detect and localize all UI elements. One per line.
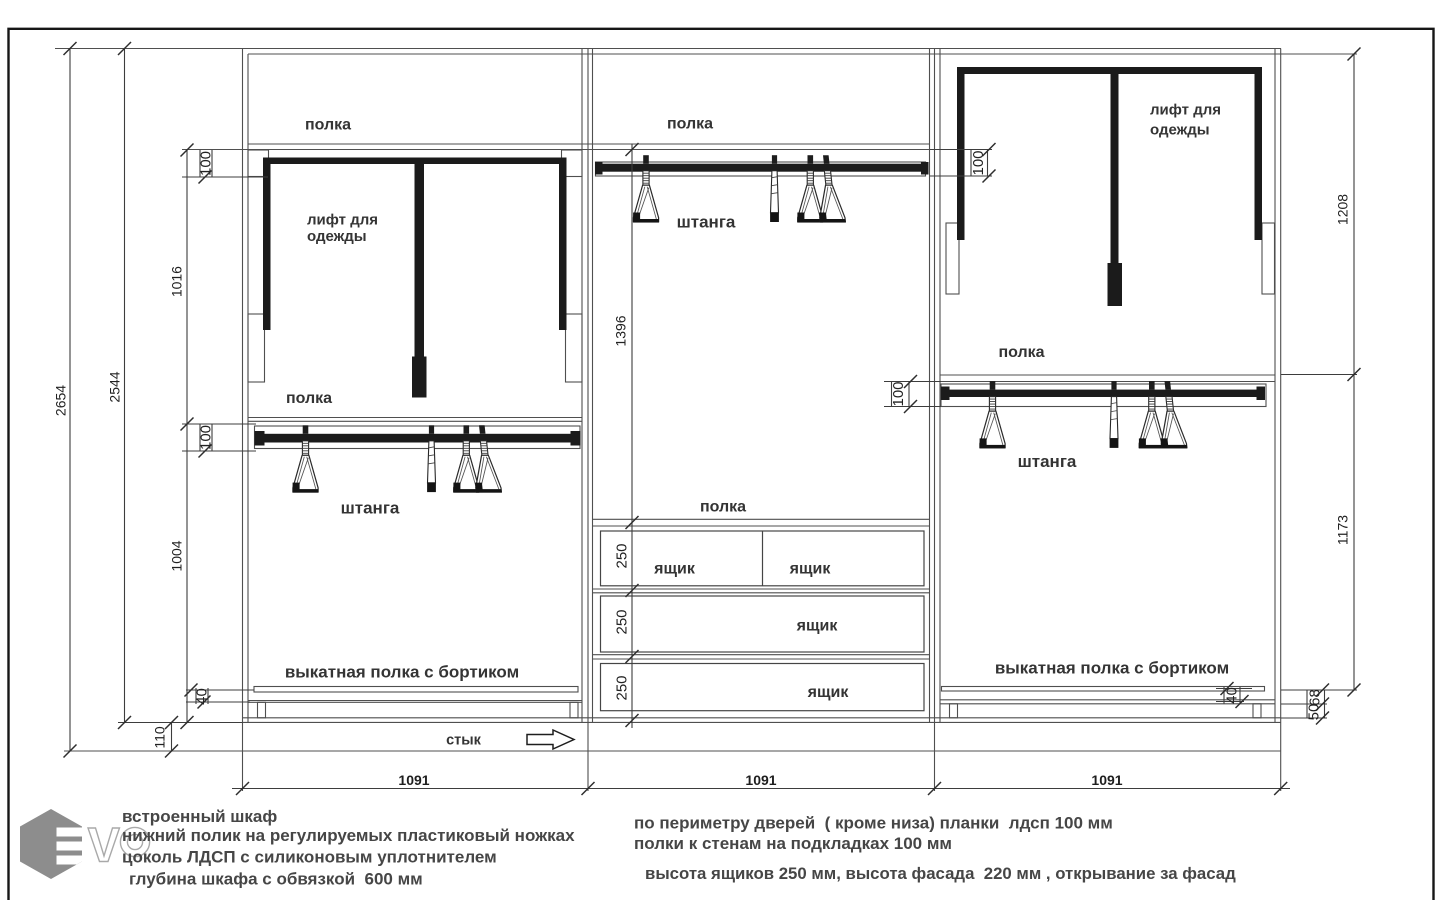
svg-text:1396: 1396 — [613, 315, 629, 346]
svg-text:100: 100 — [890, 381, 907, 406]
svg-text:1004: 1004 — [169, 540, 185, 571]
svg-text:полка: полка — [667, 116, 713, 133]
svg-text:по периметру дверей ( кроме н: по периметру дверей ( кроме низа) планки… — [634, 814, 1113, 833]
svg-text:ящик: ящик — [796, 618, 839, 635]
svg-text:250: 250 — [614, 609, 631, 634]
svg-text:нижний полик на регулируемых п: нижний полик на регулируемых пластиковый… — [122, 826, 575, 845]
svg-text:2654: 2654 — [53, 385, 69, 416]
svg-text:штанга: штанга — [677, 213, 736, 232]
svg-text:лифт для: лифт для — [1150, 102, 1221, 119]
svg-text:1091: 1091 — [745, 772, 776, 788]
svg-text:глубина шкафа с обвязкой 600: глубина шкафа с обвязкой 600 мм — [129, 870, 423, 889]
svg-text:полка: полка — [700, 499, 746, 516]
svg-text:1173: 1173 — [1335, 515, 1351, 545]
svg-text:40: 40 — [1224, 687, 1241, 704]
svg-text:250: 250 — [614, 543, 631, 568]
svg-text:штанга: штанга — [341, 499, 400, 518]
svg-text:ящик: ящик — [789, 561, 832, 578]
svg-text:полка: полка — [998, 344, 1044, 361]
svg-text:1091: 1091 — [1091, 772, 1122, 788]
svg-text:полки к стенам на подкладках 1: полки к стенам на подкладках 100 мм — [634, 834, 952, 853]
svg-text:выкатная полка с бортиком: выкатная полка с бортиком — [285, 663, 519, 682]
svg-text:высота ящиков 250 мм, высота ф: высота ящиков 250 мм, высота фасада 220 … — [645, 864, 1236, 883]
svg-text:ящик: ящик — [653, 561, 696, 578]
svg-text:50: 50 — [1306, 704, 1323, 721]
svg-text:100: 100 — [970, 150, 987, 175]
svg-text:встроенный шкаф: встроенный шкаф — [122, 807, 277, 826]
svg-text:2544: 2544 — [107, 371, 123, 402]
svg-text:одежды: одежды — [307, 228, 367, 245]
svg-text:250: 250 — [614, 675, 631, 700]
svg-text:100: 100 — [198, 425, 215, 450]
svg-text:100: 100 — [198, 151, 215, 176]
svg-text:110: 110 — [152, 726, 168, 749]
svg-text:полка: полка — [305, 117, 351, 134]
svg-text:1091: 1091 — [398, 772, 429, 788]
svg-text:одежды: одежды — [1150, 122, 1210, 139]
svg-text:1016: 1016 — [168, 266, 184, 297]
svg-text:штанга: штанга — [1018, 452, 1077, 471]
svg-text:цоколь ЛДСП с силиконовым упло: цоколь ЛДСП с силиконовым уплотнителем — [122, 848, 497, 867]
svg-text:выкатная полка с бортиком: выкатная полка с бортиком — [995, 659, 1229, 678]
svg-text:1208: 1208 — [1335, 194, 1351, 225]
svg-text:лифт для: лифт для — [307, 212, 378, 229]
svg-text:полка: полка — [286, 390, 332, 407]
svg-text:стык: стык — [446, 733, 482, 749]
svg-text:ящик: ящик — [807, 684, 850, 701]
svg-text:68: 68 — [1307, 689, 1324, 706]
svg-text:40: 40 — [194, 688, 211, 705]
